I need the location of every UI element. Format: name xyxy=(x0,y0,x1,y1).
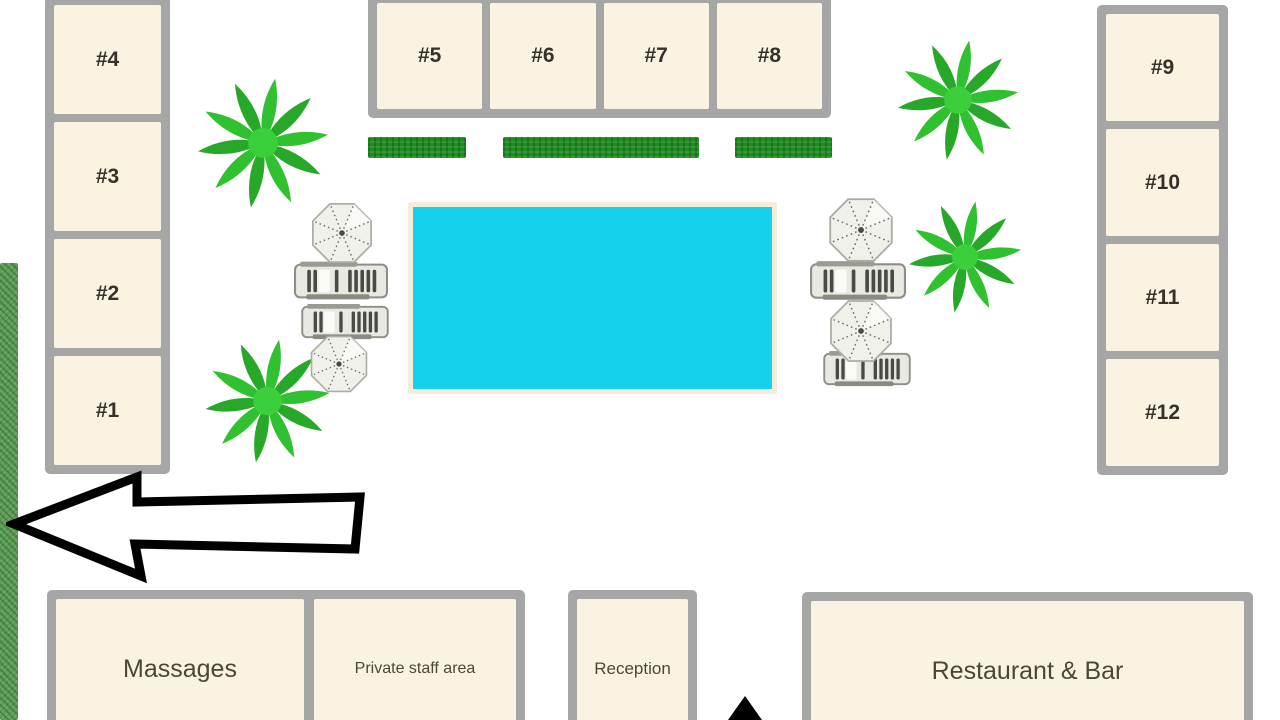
room-4: #4 xyxy=(54,5,161,114)
building-restaurant-bar: Restaurant & Bar xyxy=(802,592,1253,720)
room-2: #2 xyxy=(54,239,161,348)
room-11: #11 xyxy=(1106,244,1219,351)
room-label: #12 xyxy=(1145,401,1180,425)
palm-tree-icon xyxy=(183,78,343,208)
room-label: #4 xyxy=(96,48,119,72)
palm-tree-icon xyxy=(883,40,1033,160)
hedge-left xyxy=(368,137,466,158)
building-private-staff-area: Private staff area xyxy=(314,599,516,720)
room-8: #8 xyxy=(717,3,822,109)
room-1: #1 xyxy=(54,356,161,465)
sun-lounger-icon xyxy=(820,350,914,388)
building-label: Reception xyxy=(594,659,671,679)
palm-tree-icon xyxy=(895,201,1035,313)
exit-arrow-left-icon xyxy=(6,468,372,584)
building-label: Restaurant & Bar xyxy=(932,657,1124,686)
resort-map: #4 #3 #2 #1 #5 #6 #7 #8 #9 #10 #11 #12 xyxy=(0,0,1280,720)
room-label: #1 xyxy=(96,399,119,423)
room-9: #9 xyxy=(1106,14,1219,121)
building-reception-cell: Reception xyxy=(577,599,688,720)
swimming-pool xyxy=(408,202,777,394)
room-block-right: #9 #10 #11 #12 xyxy=(1097,5,1228,475)
sun-lounger-icon xyxy=(810,260,906,302)
room-7: #7 xyxy=(604,3,709,109)
hedge-right xyxy=(735,137,832,158)
room-12: #12 xyxy=(1106,359,1219,466)
room-label: #11 xyxy=(1146,286,1180,310)
room-label: #6 xyxy=(531,44,554,68)
room-label: #9 xyxy=(1151,56,1174,80)
room-5: #5 xyxy=(377,3,482,109)
entrance-arrow-up-icon xyxy=(722,692,772,720)
umbrella-icon xyxy=(824,193,898,267)
palm-tree-icon xyxy=(190,339,345,463)
building-label: Private staff area xyxy=(355,660,476,678)
room-label: #2 xyxy=(96,282,119,306)
room-label: #10 xyxy=(1145,171,1180,195)
sun-lounger-icon xyxy=(294,260,388,302)
room-block-top: #5 #6 #7 #8 xyxy=(368,0,831,118)
sun-lounger-icon xyxy=(297,303,393,341)
building-block-west: Massages Private staff area xyxy=(47,590,525,720)
room-10: #10 xyxy=(1106,129,1219,236)
building-label: Massages xyxy=(123,655,237,684)
umbrella-icon xyxy=(825,295,897,367)
umbrella-icon xyxy=(307,198,377,268)
room-block-left: #4 #3 #2 #1 xyxy=(45,0,170,474)
umbrella-icon xyxy=(306,331,372,397)
building-massages: Massages xyxy=(56,599,304,720)
room-label: #5 xyxy=(418,44,441,68)
hedge-center xyxy=(503,137,699,158)
room-label: #7 xyxy=(644,44,667,68)
room-label: #8 xyxy=(758,44,781,68)
building-restaurant-bar-cell: Restaurant & Bar xyxy=(811,601,1244,720)
building-reception: Reception xyxy=(568,590,697,720)
room-label: #3 xyxy=(96,165,119,189)
room-3: #3 xyxy=(54,122,161,231)
grass-strip xyxy=(0,263,18,720)
room-6: #6 xyxy=(490,3,595,109)
